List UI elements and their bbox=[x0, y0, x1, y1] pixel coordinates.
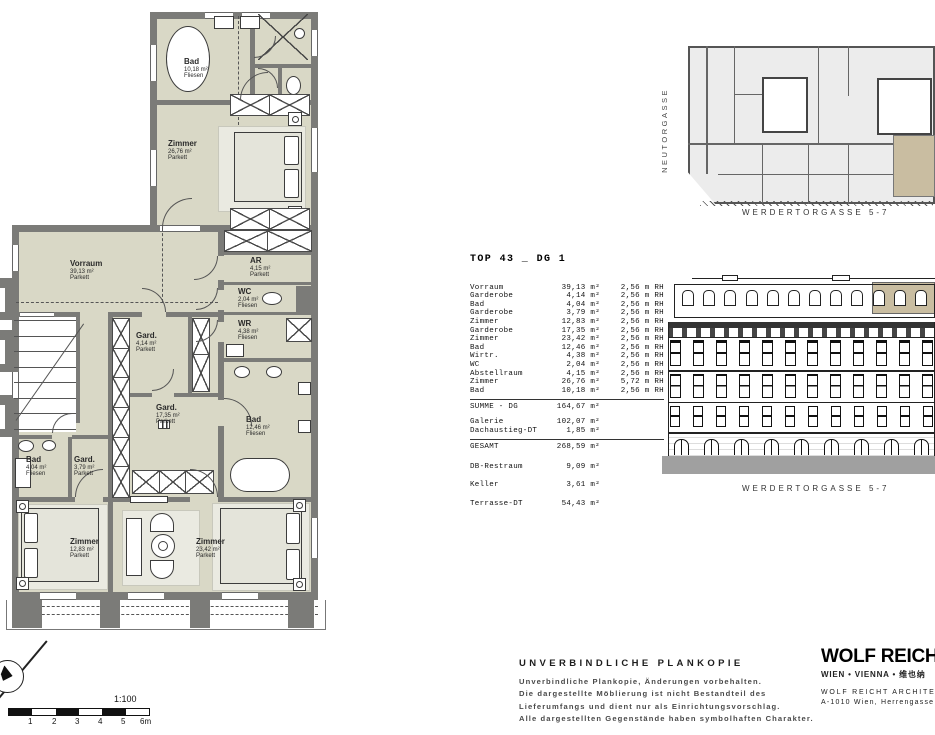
street-label-neutorgasse: NEUTORGASSE bbox=[660, 88, 669, 173]
row-name: Zimmer bbox=[470, 335, 548, 344]
ground-arch bbox=[884, 439, 899, 455]
nightstand bbox=[288, 112, 302, 126]
facade-window bbox=[922, 340, 933, 366]
row-area: 26,76 m² bbox=[548, 378, 600, 387]
window bbox=[311, 518, 318, 558]
scale-tick: 5 bbox=[121, 717, 125, 726]
plan-sheet: Bad 10,18 m² Fliesen Zimmer 26,76 m² Par… bbox=[0, 0, 935, 735]
scale-tick: 4 bbox=[98, 717, 102, 726]
ground-arch bbox=[704, 439, 719, 455]
row-name: Wirtr. bbox=[470, 352, 548, 361]
summary-value: 3,61 m² bbox=[540, 481, 600, 490]
summary-row: Terrasse-DT54,43 m² bbox=[470, 500, 664, 509]
room-name: Bad bbox=[246, 416, 270, 425]
table-row: Abstellraum4,15 m²2,56 m RH bbox=[470, 370, 664, 379]
facade-window bbox=[807, 340, 818, 366]
room-floor: Fliesen bbox=[238, 303, 258, 309]
room-name: Zimmer bbox=[70, 538, 99, 547]
row-area: 4,15 m² bbox=[548, 370, 600, 379]
terrace-pillar bbox=[100, 600, 120, 628]
summary-value: 164,67 m² bbox=[540, 403, 600, 412]
room-label-wc: WC 2,04 m² Fliesen bbox=[238, 288, 258, 310]
ground-arch bbox=[824, 439, 839, 455]
bath-cabinet bbox=[298, 382, 311, 395]
row-area: 12,83 m² bbox=[548, 318, 600, 327]
table-row: Garderobe17,35 m²2,56 m RH bbox=[470, 327, 664, 336]
nightstand bbox=[293, 578, 306, 591]
ground-arch bbox=[854, 439, 869, 455]
window-row bbox=[670, 406, 933, 427]
facade-window bbox=[854, 406, 864, 427]
dormer-window bbox=[830, 290, 842, 306]
washing-machine-cell bbox=[286, 318, 312, 342]
row-name: Bad bbox=[470, 387, 548, 396]
row-area: 4,38 m² bbox=[548, 352, 600, 361]
facade-window bbox=[830, 340, 841, 366]
summary-label: Dachaustieg-DT bbox=[470, 427, 540, 436]
summary-value: 54,43 m² bbox=[540, 500, 600, 509]
summary-label: SUMME - DG bbox=[470, 403, 540, 412]
wardrobe-cell bbox=[267, 230, 312, 252]
room-label-zimmer-top: Zimmer 26,76 m² Parkett bbox=[168, 140, 197, 162]
stair-step bbox=[14, 382, 76, 383]
architect-logo: WOLF REICHT ARCHITECTS WIEN • VIENNA • 维… bbox=[821, 646, 935, 706]
room-label-gard-klein: Gard. 4,14 m² Parkett bbox=[136, 332, 157, 354]
row-height: 2,56 m RH bbox=[600, 327, 664, 336]
facade-window bbox=[831, 406, 841, 427]
terrace-outline bbox=[6, 600, 326, 630]
stair-step bbox=[14, 367, 76, 368]
facade-window bbox=[693, 340, 704, 366]
armchair bbox=[150, 513, 174, 532]
summary-row: Galerie102,07 m² bbox=[470, 418, 664, 427]
terrace-pillar bbox=[288, 600, 314, 628]
facade-window bbox=[716, 406, 726, 427]
table-row: Vorraum39,13 m²2,56 m RH bbox=[470, 284, 664, 293]
arch-row bbox=[674, 439, 929, 455]
dormer-window bbox=[682, 290, 694, 306]
scale-segment bbox=[32, 709, 55, 715]
dormer-window bbox=[809, 290, 821, 306]
chimney bbox=[722, 275, 738, 281]
wardrobe-cell bbox=[112, 466, 130, 497]
facade-window bbox=[762, 340, 773, 366]
row-height: 2,56 m RH bbox=[600, 361, 664, 370]
scale-segment bbox=[56, 709, 79, 715]
terrace-pillar bbox=[12, 600, 42, 628]
summary-label: GESAMT bbox=[470, 443, 540, 452]
summary-row: SUMME - DG164,67 m² bbox=[470, 403, 664, 412]
room-floor: Parkett bbox=[250, 272, 270, 278]
window bbox=[222, 592, 258, 600]
wardrobe-cell bbox=[112, 407, 130, 438]
facade-window bbox=[877, 406, 887, 427]
row-name: Garderobe bbox=[470, 292, 548, 301]
gallery-outline bbox=[162, 228, 163, 302]
wall bbox=[108, 312, 142, 317]
site-caption: WERDERTORGASSE 5-7 bbox=[742, 208, 890, 217]
washbasin bbox=[214, 16, 234, 29]
row-height: 2,56 m RH bbox=[600, 318, 664, 327]
facade-window bbox=[670, 340, 681, 366]
terrace-pillar bbox=[190, 600, 210, 628]
dormer-window bbox=[894, 290, 906, 306]
wall bbox=[166, 312, 224, 317]
disclaimer-line: Die dargestellte Möblierung ist nicht Be… bbox=[519, 688, 815, 700]
wall bbox=[174, 393, 218, 397]
building-elevation bbox=[662, 276, 935, 488]
courtyard bbox=[877, 78, 932, 135]
firm-line1: WOLF REICHT ARCHITECTS bbox=[821, 689, 935, 696]
window bbox=[40, 592, 76, 600]
table-row: WC2,04 m²2,56 m RH bbox=[470, 361, 664, 370]
window bbox=[0, 288, 5, 312]
summary-value: 9,09 m² bbox=[540, 463, 600, 472]
stair-step bbox=[14, 320, 76, 321]
room-floor: Fliesen bbox=[26, 471, 46, 477]
row-height: 2,56 m RH bbox=[600, 309, 664, 318]
summary-label: Galerie bbox=[470, 418, 540, 427]
row-height: 2,56 m RH bbox=[600, 352, 664, 361]
wardrobe-cell bbox=[159, 470, 187, 494]
firm-name-bold: WOLF REICHT bbox=[821, 646, 935, 667]
table-row: Garderobe4,14 m²2,56 m RH bbox=[470, 292, 664, 301]
room-label-bad-top: Bad 10,18 m² Fliesen bbox=[184, 58, 208, 80]
room-name: WC bbox=[238, 288, 258, 297]
site-hatch bbox=[700, 201, 933, 206]
facade-window bbox=[739, 374, 750, 398]
wardrobe-cell bbox=[112, 377, 130, 408]
summary-value: 102,07 m² bbox=[540, 418, 600, 427]
cornice bbox=[668, 337, 935, 338]
elevation-caption: WERDERTORGASSE 5-7 bbox=[742, 484, 890, 493]
site-wall bbox=[818, 46, 819, 143]
facade-window bbox=[807, 374, 818, 398]
facade-window bbox=[693, 406, 703, 427]
wall bbox=[68, 437, 72, 497]
wall bbox=[218, 358, 318, 362]
pillow bbox=[24, 513, 38, 543]
ground-arch bbox=[794, 439, 809, 455]
row-name: WC bbox=[470, 361, 548, 370]
wardrobe-cell bbox=[224, 230, 269, 252]
bathtub bbox=[230, 458, 290, 492]
room-name: Zimmer bbox=[168, 140, 197, 149]
unit-title: TOP 43 _ DG 1 bbox=[470, 256, 664, 265]
table-row: Wirtr.4,38 m²2,56 m RH bbox=[470, 352, 664, 361]
toilet bbox=[286, 76, 301, 95]
summary-value: 268,59 m² bbox=[540, 443, 600, 452]
nightstand bbox=[293, 499, 306, 512]
dormer-row bbox=[682, 290, 927, 306]
room-name: WR bbox=[238, 320, 258, 329]
row-height: 2,56 m RH bbox=[600, 335, 664, 344]
summary-label: Keller bbox=[470, 481, 540, 490]
facade-window bbox=[716, 374, 727, 398]
gallery-outline bbox=[16, 302, 218, 303]
pillow bbox=[286, 549, 300, 580]
coffee-table-center bbox=[158, 541, 168, 551]
summary-row: GESAMT268,59 m² bbox=[470, 443, 664, 452]
room-label-ar: AR 4,15 m² Parkett bbox=[250, 257, 270, 279]
facade-window bbox=[853, 340, 864, 366]
disclaimer-line: Alle dargestellten Gegenstände haben sym… bbox=[519, 713, 815, 725]
facade-window bbox=[900, 406, 910, 427]
row-name: Vorraum bbox=[470, 284, 548, 293]
room-floor: Fliesen bbox=[184, 73, 208, 79]
room-name: Bad bbox=[26, 456, 46, 465]
dormer-window bbox=[873, 290, 885, 306]
floor-plan: Bad 10,18 m² Fliesen Zimmer 26,76 m² Par… bbox=[0, 0, 340, 640]
site-wall bbox=[848, 46, 849, 96]
washbasin bbox=[266, 366, 282, 378]
wardrobe-column bbox=[112, 318, 130, 496]
washbasin bbox=[18, 440, 34, 452]
window-row bbox=[670, 374, 933, 398]
wall bbox=[218, 282, 318, 285]
table-row: Bad10,18 m²2,56 m RH bbox=[470, 387, 664, 396]
facade-window bbox=[899, 340, 910, 366]
facade-window bbox=[670, 406, 680, 427]
window bbox=[0, 405, 5, 429]
shower-head bbox=[294, 28, 305, 39]
row-name: Zimmer bbox=[470, 378, 548, 387]
wardrobe-cell bbox=[132, 470, 160, 494]
ground-arch bbox=[914, 439, 929, 455]
facade-window bbox=[739, 340, 750, 366]
facade-window bbox=[876, 374, 887, 398]
table-row: Zimmer26,76 m²5,72 m RH bbox=[470, 378, 664, 387]
room-name: Vorraum bbox=[70, 260, 102, 269]
console-table bbox=[130, 496, 168, 503]
cornice bbox=[668, 370, 935, 372]
site-plan bbox=[688, 46, 935, 204]
scale-tick: 1 bbox=[28, 717, 32, 726]
ground-band bbox=[662, 456, 935, 474]
disclaimer: UNVERBINDLICHE PLANKOPIE Unverbindliche … bbox=[519, 658, 815, 725]
scale-ratio: 1:100 bbox=[114, 694, 137, 704]
window bbox=[0, 340, 5, 364]
scale-segment bbox=[102, 709, 125, 715]
scale-segment bbox=[126, 709, 149, 715]
wall bbox=[218, 342, 224, 400]
pillow bbox=[284, 169, 299, 198]
wardrobe bbox=[224, 230, 310, 252]
facade-edge bbox=[668, 322, 669, 456]
wardrobe-cell bbox=[230, 208, 271, 230]
washbasin bbox=[240, 16, 260, 29]
dormer-window bbox=[724, 290, 736, 306]
table-rule bbox=[470, 399, 664, 400]
row-height: 2,56 m RH bbox=[600, 370, 664, 379]
facade-window bbox=[808, 406, 818, 427]
summary-row: Dachaustieg-DT1,85 m² bbox=[470, 427, 664, 436]
table-row: Zimmer23,42 m²2,56 m RH bbox=[470, 335, 664, 344]
facade-window bbox=[693, 374, 704, 398]
facade-window bbox=[876, 340, 887, 366]
table-rule bbox=[470, 439, 664, 440]
row-area: 10,18 m² bbox=[548, 387, 600, 396]
chimney bbox=[832, 275, 850, 281]
room-floor: Parkett bbox=[196, 553, 225, 559]
row-height: 2,56 m RH bbox=[600, 301, 664, 310]
row-name: Garderobe bbox=[470, 327, 548, 336]
scale-tick: 6m bbox=[140, 717, 151, 726]
dormer-window bbox=[746, 290, 758, 306]
summary-value: 1,85 m² bbox=[540, 427, 600, 436]
window bbox=[12, 245, 19, 271]
nightstand bbox=[16, 577, 29, 590]
stair-step bbox=[14, 398, 76, 399]
firm-name: WOLF REICHT ARCHITECTS bbox=[821, 646, 935, 668]
row-height: 2,56 m RH bbox=[600, 292, 664, 301]
room-name: Bad bbox=[184, 58, 208, 67]
facade-window bbox=[922, 374, 933, 398]
room-floor: Fliesen bbox=[246, 431, 270, 437]
sofa bbox=[126, 518, 142, 576]
facade-window bbox=[762, 374, 773, 398]
row-height: 2,56 m RH bbox=[600, 387, 664, 396]
dormer-window bbox=[915, 290, 927, 306]
summary-row: DB-Restraum9,09 m² bbox=[470, 463, 664, 472]
window bbox=[150, 150, 157, 186]
facade-window bbox=[830, 374, 841, 398]
bath-cabinet bbox=[298, 420, 311, 433]
row-height: 5,72 m RH bbox=[600, 378, 664, 387]
row-area: 17,35 m² bbox=[548, 327, 600, 336]
room-name: Gard. bbox=[136, 332, 157, 341]
row-area: 23,42 m² bbox=[548, 335, 600, 344]
room-label-vorraum: Vorraum 39,13 m² Parkett bbox=[70, 260, 102, 282]
row-height: 2,56 m RH bbox=[600, 284, 664, 293]
pillow bbox=[286, 513, 300, 544]
wall bbox=[218, 312, 318, 315]
window bbox=[20, 312, 54, 317]
facade-window bbox=[899, 374, 910, 398]
area-table: TOP 43 _ DG 1 Vorraum39,13 m²2,56 m RH G… bbox=[470, 256, 664, 508]
window bbox=[311, 128, 318, 172]
room-floor: Parkett bbox=[136, 347, 157, 353]
room-label-gard-379: Gard. 3,79 m² Parkett bbox=[74, 456, 95, 478]
firm-subtitle: WIEN • VIENNA • 维也纳 bbox=[821, 669, 935, 680]
courtyard bbox=[762, 77, 808, 133]
disclaimer-line: Lieferumfangs und dient nur als Einricht… bbox=[519, 701, 815, 713]
row-area: 3,79 m² bbox=[548, 309, 600, 318]
scale-segment bbox=[9, 709, 32, 715]
row-name: Abstellraum bbox=[470, 370, 548, 379]
firm-address: A-1010 Wien, Herrengasse 6 bbox=[821, 699, 935, 706]
stair-step bbox=[14, 336, 76, 337]
wardrobe-cell bbox=[269, 208, 310, 230]
toilet bbox=[262, 292, 282, 305]
wardrobe-cell bbox=[112, 318, 130, 349]
facade-window bbox=[785, 406, 795, 427]
window-row bbox=[670, 340, 933, 366]
highlighted-unit bbox=[893, 135, 935, 197]
room-floor: Parkett bbox=[70, 275, 102, 281]
summary-label: DB-Restraum bbox=[470, 463, 540, 472]
scale-segment bbox=[79, 709, 102, 715]
site-wall bbox=[706, 46, 708, 174]
row-name: Zimmer bbox=[470, 318, 548, 327]
row-name: Bad bbox=[470, 301, 548, 310]
facade-window bbox=[762, 406, 772, 427]
row-name: Bad bbox=[470, 344, 548, 353]
disclaimer-title: UNVERBINDLICHE PLANKOPIE bbox=[519, 658, 815, 669]
washing-machine bbox=[286, 318, 310, 342]
row-area: 2,04 m² bbox=[548, 361, 600, 370]
wall bbox=[12, 435, 52, 439]
facade-window bbox=[716, 340, 727, 366]
ground-arch bbox=[734, 439, 749, 455]
washbasin bbox=[234, 366, 250, 378]
cornice bbox=[668, 402, 935, 403]
table-row: Zimmer12,83 m²2,56 m RH bbox=[470, 318, 664, 327]
scale-bar bbox=[8, 708, 150, 716]
wall bbox=[72, 435, 108, 439]
window bbox=[128, 592, 164, 600]
summary-row: Keller3,61 m² bbox=[470, 481, 664, 490]
ground-arch bbox=[674, 439, 689, 455]
room-label-bad-klein: Bad 4,04 m² Fliesen bbox=[26, 456, 46, 478]
disclaimer-line: Unverbindliche Plankopie, Änderungen vor… bbox=[519, 676, 815, 688]
room-label-bad-mitte: Bad 12,46 m² Fliesen bbox=[246, 416, 270, 438]
window bbox=[311, 30, 318, 56]
room-name: AR bbox=[250, 257, 270, 266]
dormer-window bbox=[767, 290, 779, 306]
row-height: 2,56 m RH bbox=[600, 344, 664, 353]
dormer-window bbox=[788, 290, 800, 306]
window bbox=[150, 45, 157, 81]
summary-label: Terrasse-DT bbox=[470, 500, 540, 509]
attic-window-strip bbox=[668, 328, 935, 337]
room-name: Zimmer bbox=[196, 538, 225, 547]
dormer-window bbox=[703, 290, 715, 306]
facade-window bbox=[739, 406, 749, 427]
pillow bbox=[284, 136, 299, 165]
room-label-gard-gross: Gard. 17,35 m² Parkett bbox=[156, 404, 180, 426]
row-name: Garderobe bbox=[470, 309, 548, 318]
ground-arch bbox=[764, 439, 779, 455]
room-floor: Fliesen bbox=[238, 335, 258, 341]
nightstand bbox=[16, 500, 29, 513]
scale-tick: 2 bbox=[52, 717, 56, 726]
room-label-zimmer-sued: Zimmer 23,42 m² Parkett bbox=[196, 538, 225, 560]
duct bbox=[296, 286, 311, 312]
wardrobe-cell bbox=[192, 354, 210, 392]
room-floor: Parkett bbox=[168, 155, 197, 161]
facade-window bbox=[853, 374, 864, 398]
wardrobe-cell bbox=[112, 348, 130, 379]
room-floor: Parkett bbox=[70, 553, 99, 559]
room-name: Gard. bbox=[74, 456, 95, 465]
wardrobe bbox=[230, 208, 308, 230]
facade-window bbox=[923, 406, 933, 427]
toilet bbox=[42, 440, 56, 451]
wardrobe-cell bbox=[112, 437, 130, 468]
appliance bbox=[226, 344, 244, 357]
pillow bbox=[24, 548, 38, 578]
facade-window bbox=[785, 374, 796, 398]
facade-window bbox=[785, 340, 796, 366]
room-floor: Parkett bbox=[156, 419, 180, 425]
room-label-wr: WR 4,38 m² Fliesen bbox=[238, 320, 258, 342]
room-name: Gard. bbox=[156, 404, 180, 413]
room-floor: Parkett bbox=[74, 471, 95, 477]
row-area: 39,13 m² bbox=[548, 284, 600, 293]
wall bbox=[218, 426, 224, 497]
facade-window bbox=[670, 374, 681, 398]
